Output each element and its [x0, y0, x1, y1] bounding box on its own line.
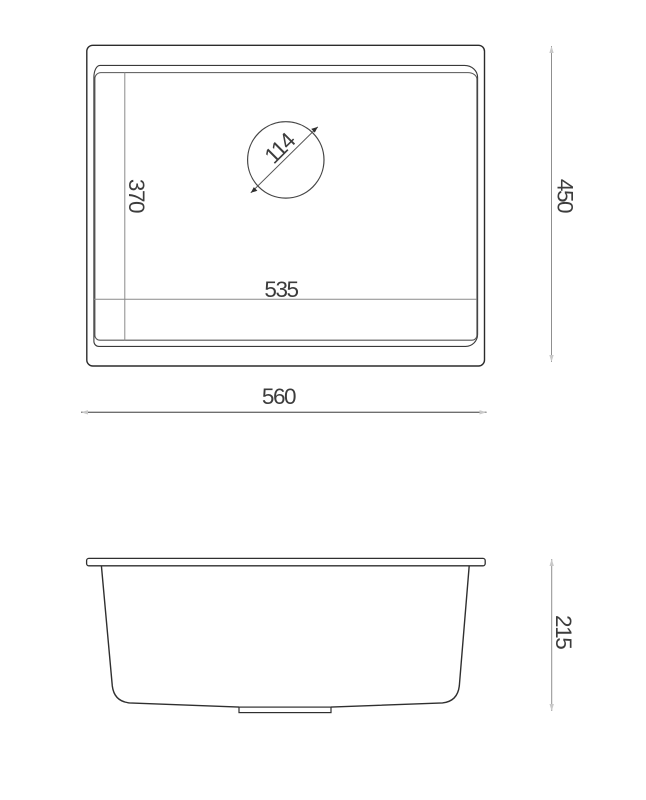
- svg-text:370: 370: [124, 179, 149, 213]
- svg-text:535: 535: [264, 277, 298, 302]
- svg-text:450: 450: [552, 179, 577, 213]
- svg-text:215: 215: [551, 615, 576, 649]
- svg-text:560: 560: [262, 384, 296, 409]
